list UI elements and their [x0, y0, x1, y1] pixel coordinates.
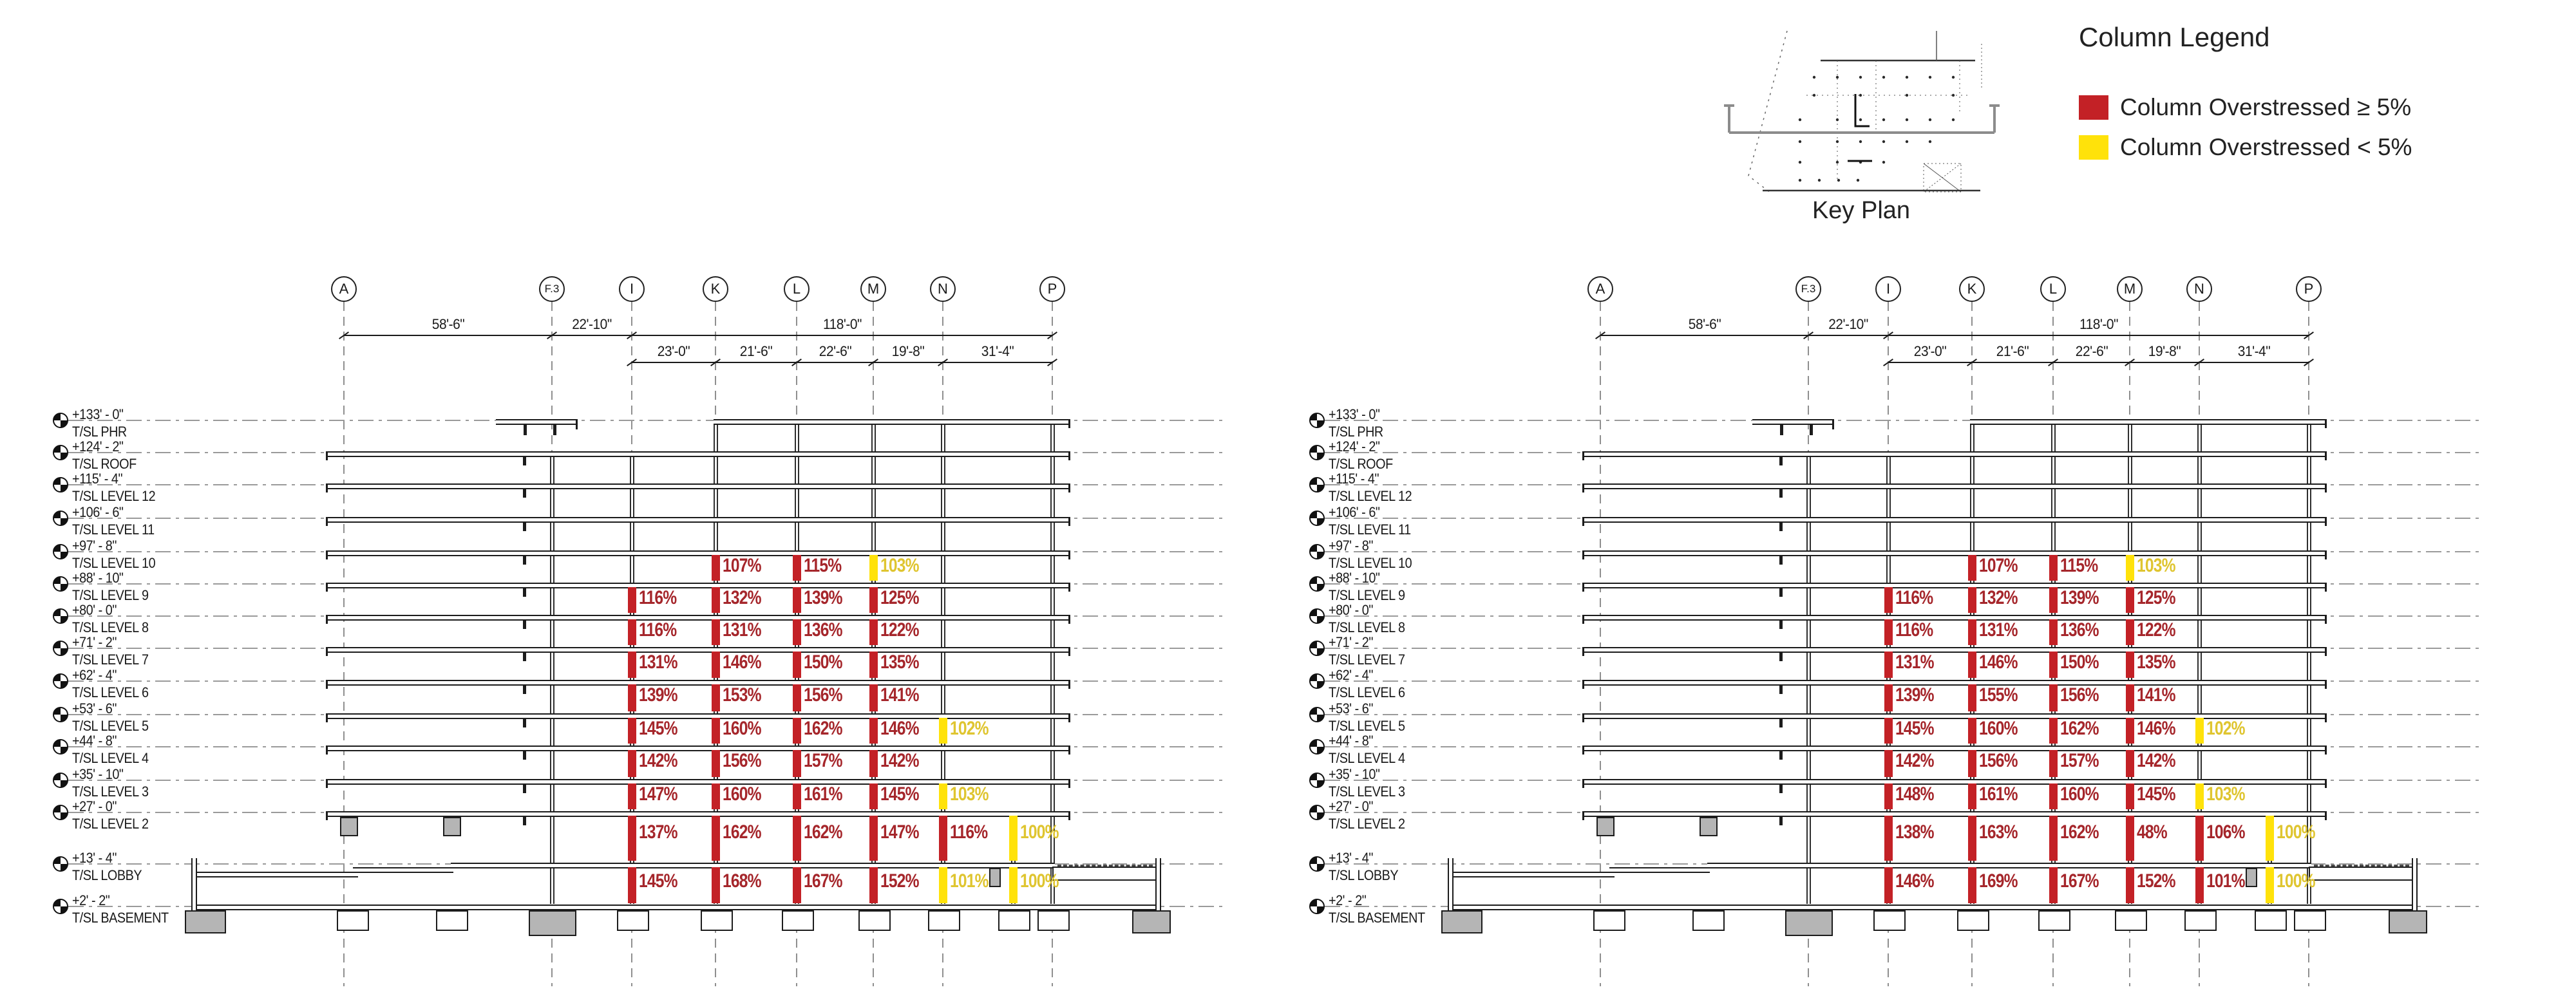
lobby-apron-slab-right — [2309, 867, 2417, 881]
column-bar-major — [869, 783, 878, 809]
column-bar-major — [712, 718, 720, 744]
dimension-line — [344, 335, 1052, 336]
level-elevation-label: +133' - 0" — [72, 408, 124, 422]
column-footing — [782, 910, 814, 931]
percent-label: 156% — [2060, 686, 2099, 705]
column-bar-major — [939, 816, 947, 861]
percent-label: 122% — [880, 621, 919, 640]
percent-label: 135% — [2137, 653, 2175, 672]
column-footing — [701, 910, 733, 931]
slab-end-cap — [326, 451, 328, 460]
slab-stub — [523, 523, 526, 531]
level-marker-icon — [52, 510, 69, 527]
column-bar-major — [1884, 783, 1893, 809]
elevation-view-left: AF.3IKLMNP58'-6"22'-10"118'-0"23'-0"21'-… — [0, 0, 1262, 994]
percent-label: 131% — [1895, 653, 1934, 672]
column-stub — [340, 817, 358, 836]
level-name-label: T/SL LEVEL 6 — [72, 686, 149, 700]
percent-label: 146% — [2137, 719, 2175, 738]
percent-label: 145% — [880, 785, 919, 804]
column-footing — [998, 910, 1030, 931]
level-marker-icon — [1309, 738, 1325, 755]
slab-stub — [1779, 653, 1783, 661]
column-bar-major — [793, 652, 801, 678]
column-bar-major — [1968, 718, 1976, 744]
grid-line-A — [343, 302, 345, 986]
level-name-label: T/SL LEVEL 7 — [1329, 653, 1405, 667]
column-bar-major — [1884, 750, 1893, 777]
slab-end-cap — [326, 713, 328, 722]
level-name-label: T/SL BASEMENT — [72, 911, 169, 925]
dimension-label: 31'-4" — [980, 343, 1016, 360]
percent-label: 161% — [804, 785, 842, 804]
floor-slab — [1582, 583, 2325, 588]
floor-slab — [326, 550, 1069, 556]
column-bar-minor — [2266, 816, 2274, 861]
grid-bubble-M: M — [860, 276, 886, 302]
grid-footing-F3 — [529, 910, 576, 936]
lobby-apron-slab-left2 — [353, 867, 453, 873]
level-elevation-label: +27' - 0" — [72, 800, 117, 814]
grid-bubble-label: P — [1048, 281, 1057, 297]
slab-end-cap — [326, 583, 328, 592]
percent-label: 150% — [804, 653, 842, 672]
grid-bubble-K: K — [1959, 276, 1985, 302]
percent-label: 131% — [723, 621, 761, 640]
percent-label: 142% — [639, 751, 677, 771]
grid-bubble-N: N — [2186, 276, 2212, 302]
column-footing — [928, 910, 960, 931]
percent-label: 142% — [2137, 751, 2175, 771]
slab-end-cap — [2325, 550, 2327, 559]
grid-bubble-A: A — [1587, 276, 1613, 302]
percent-label: 116% — [1895, 588, 1933, 608]
percent-label: 131% — [639, 653, 677, 672]
column-bar-major — [2126, 684, 2134, 711]
level-elevation-label: +13' - 4" — [72, 851, 117, 865]
slab-stub — [1779, 489, 1783, 498]
slab-stub — [523, 785, 526, 793]
percent-label: 125% — [880, 588, 919, 608]
grid-bubble-label: A — [1596, 281, 1605, 297]
slab-end-cap — [2325, 779, 2327, 788]
slab-end-cap — [2325, 517, 2327, 526]
column-bar-major — [2126, 783, 2134, 809]
dimension-label: 19'-8" — [890, 343, 926, 360]
level-name-label: T/SL LEVEL 6 — [1329, 686, 1405, 700]
level-name-label: T/SL BASEMENT — [1329, 911, 1425, 925]
column-bar-major — [869, 619, 878, 645]
percent-label: 156% — [1979, 751, 2018, 771]
column-bar-major — [712, 587, 720, 613]
grid-bubble-I: I — [619, 276, 645, 302]
column-bar-major — [2049, 783, 2058, 809]
column-bar-major — [628, 718, 636, 744]
percent-label: 103% — [880, 556, 919, 576]
level-elevation-label: +133' - 0" — [1329, 408, 1380, 422]
column-footing — [1873, 910, 1906, 931]
slab-stub — [1779, 621, 1783, 629]
percent-label: 139% — [804, 588, 842, 608]
level-name-label: T/SL LEVEL 9 — [72, 588, 149, 603]
level-elevation-label: +80' - 0" — [1329, 603, 1373, 617]
level-marker-icon — [1309, 706, 1325, 723]
percent-label: 100% — [2277, 872, 2315, 891]
slab-end-cap — [1582, 517, 1584, 526]
level-name-label: T/SL LEVEL 10 — [72, 556, 155, 570]
column-bar-major — [628, 783, 636, 809]
slab-end-cap — [1582, 745, 1584, 755]
grid-bubble-label: N — [938, 281, 948, 297]
slab-end-cap — [326, 647, 328, 656]
column-bar-major — [2049, 555, 2058, 581]
level-name-label: T/SL LEVEL 2 — [72, 817, 149, 831]
column-bar-major — [2126, 718, 2134, 744]
floor-slab — [1582, 550, 2325, 556]
slab-end-cap — [326, 483, 328, 492]
ramp-hatch — [1057, 865, 1153, 867]
percent-label: 142% — [1895, 751, 1934, 771]
level-elevation-label: +106' - 6" — [72, 505, 124, 520]
percent-label: 145% — [639, 719, 677, 738]
level-elevation-label: +115' - 4" — [1329, 472, 1379, 486]
slab-end-cap — [1582, 647, 1584, 656]
section-cut-line — [1724, 106, 2000, 133]
level-name-label: T/SL LEVEL 9 — [1329, 588, 1405, 603]
floor-slab — [1582, 517, 2325, 523]
slab-end-cap — [1582, 680, 1584, 689]
column-footing — [2038, 910, 2070, 931]
percent-label: 139% — [1895, 686, 1934, 705]
floor-slab — [326, 483, 1069, 489]
grid-bubble-label: I — [1886, 281, 1890, 297]
canopy-end-cap — [1832, 419, 1834, 429]
penthouse-roof-slab — [1970, 419, 2325, 425]
level-name-label: T/SL LEVEL 8 — [1329, 621, 1405, 635]
grid-bubble-I: I — [1875, 276, 1901, 302]
level-elevation-label: +44' - 8" — [72, 734, 117, 748]
dimension-label: 21'-6" — [738, 343, 774, 360]
column-bar-major — [869, 750, 878, 777]
column-bar-major — [2126, 867, 2134, 903]
floor-slab — [326, 517, 1069, 523]
column-bar-minor — [939, 783, 947, 809]
level-marker-icon — [1309, 772, 1325, 789]
column-bar-major — [869, 718, 878, 744]
column-bar-major — [869, 684, 878, 711]
column-bar-minor — [939, 718, 947, 744]
grid-bubble-M: M — [2117, 276, 2143, 302]
level-name-label: T/SL LEVEL 4 — [1329, 751, 1405, 765]
percent-label: 162% — [723, 823, 761, 842]
column-bar-minor — [2195, 783, 2204, 809]
slab-end-cap — [1068, 745, 1070, 755]
level-marker-icon — [52, 543, 69, 560]
percent-label: 161% — [1979, 785, 2018, 804]
dimension-label: 22'-6" — [817, 343, 853, 360]
column-bar-major — [628, 652, 636, 678]
lobby-apron-slab-right — [1052, 867, 1160, 881]
slab-end-cap — [2325, 419, 2327, 428]
level-marker-icon — [1309, 640, 1325, 657]
level-marker-icon — [52, 608, 69, 624]
level-elevation-label: +27' - 0" — [1329, 800, 1373, 814]
column-bar-major — [1884, 619, 1893, 645]
canopy-slab — [496, 419, 577, 425]
percent-label: 162% — [2060, 823, 2099, 842]
grid-bubble-F.3: F.3 — [539, 276, 565, 302]
level-elevation-label: +44' - 8" — [1329, 734, 1373, 748]
level-elevation-label: +115' - 4" — [72, 472, 122, 486]
slab-end-cap — [2325, 680, 2327, 689]
slab-end-cap — [1068, 680, 1070, 689]
dimension-label: 19'-8" — [2146, 343, 2183, 360]
slab-stub — [523, 457, 526, 465]
percent-label: 146% — [1895, 872, 1934, 891]
dimension-label: 58'-6" — [1686, 316, 1722, 333]
level-name-label: T/SL LEVEL 11 — [1329, 523, 1411, 537]
column-bar-major — [2049, 684, 2058, 711]
key-plan-thumbnail — [1710, 18, 2012, 196]
column-footing — [1957, 910, 1989, 931]
dimension-label: 22'-10" — [570, 316, 613, 333]
grid-bubble-label: A — [339, 281, 349, 297]
slab-stub — [1779, 588, 1783, 597]
column-bar-major — [793, 750, 801, 777]
percent-label: 116% — [639, 621, 676, 640]
slab-stub — [523, 719, 526, 727]
slab-end-cap — [326, 550, 328, 559]
level-name-label: T/SL LEVEL 10 — [1329, 556, 1412, 570]
level-elevation-label: +88' - 10" — [72, 571, 124, 585]
canopy-stub — [553, 425, 556, 435]
percent-label: 136% — [804, 621, 842, 640]
grid-bubble-label: K — [1967, 281, 1977, 297]
level-marker-icon — [1309, 856, 1325, 872]
percent-label: 139% — [2060, 588, 2099, 608]
percent-label: 102% — [950, 719, 989, 738]
level-marker-icon — [1309, 444, 1325, 461]
column-bar-major — [869, 652, 878, 678]
floor-slab — [1582, 615, 2325, 621]
canopy-stub — [1780, 425, 1783, 435]
percent-label: 103% — [950, 785, 989, 804]
level-elevation-label: +62' - 4" — [72, 668, 117, 682]
ramp-hatch — [2314, 865, 2409, 867]
slab-end-cap — [1582, 713, 1584, 722]
percent-label: 155% — [1979, 686, 2018, 705]
column-footing — [1593, 910, 1625, 931]
level-name-label: T/SL LEVEL 12 — [1329, 489, 1412, 503]
percent-label: 139% — [639, 686, 677, 705]
column-bar-major — [1968, 816, 1976, 861]
floor-slab — [326, 680, 1069, 686]
wall-footing — [185, 910, 226, 933]
level-elevation-label: +71' - 2" — [72, 635, 117, 650]
lobby-column-stub — [2246, 868, 2257, 887]
percent-label: 157% — [804, 751, 842, 771]
percent-label: 138% — [1895, 823, 1934, 842]
slab-end-cap — [1582, 811, 1584, 820]
percent-label: 146% — [1979, 653, 2018, 672]
dimension-line — [632, 362, 1052, 363]
column-bar-major — [2195, 816, 2204, 861]
percent-label: 141% — [2137, 686, 2175, 705]
percent-label: 162% — [804, 719, 842, 738]
level-elevation-label: +97' - 8" — [72, 539, 117, 553]
percent-label: 147% — [880, 823, 919, 842]
percent-label: 160% — [723, 785, 761, 804]
percent-label: 103% — [2137, 556, 2175, 576]
slab-stub — [1779, 719, 1783, 727]
dimension-label: 31'-4" — [2236, 343, 2272, 360]
percent-label: 162% — [804, 823, 842, 842]
grid-bubble-label: M — [2124, 281, 2136, 297]
grid-bubble-K: K — [703, 276, 728, 302]
column-bar-major — [712, 867, 720, 903]
floor-slab — [1582, 483, 2325, 489]
level-elevation-label: +35' - 10" — [72, 767, 124, 782]
level-marker-icon — [1309, 804, 1325, 821]
level-elevation-label: +13' - 4" — [1329, 851, 1373, 865]
drawing-canvas: Column Legend Column Overstressed ≥ 5% C… — [0, 0, 2576, 994]
column-bar-major — [1968, 750, 1976, 777]
percent-label: 167% — [804, 872, 842, 891]
level-marker-icon — [52, 673, 69, 689]
slab-end-cap — [1068, 713, 1070, 722]
level-name-label: T/SL LEVEL 5 — [1329, 719, 1405, 733]
level-elevation-label: +53' - 6" — [1329, 702, 1373, 716]
lobby-slab — [451, 863, 1055, 868]
grid-bubble-label: P — [2304, 281, 2314, 297]
dimension-label: 21'-6" — [1994, 343, 2031, 360]
level-elevation-label: +124' - 2" — [72, 440, 124, 454]
column-bar-major — [2195, 867, 2204, 903]
percent-label: 48% — [2137, 823, 2167, 842]
floor-slab — [1582, 745, 2325, 751]
level-elevation-label: +97' - 8" — [1329, 539, 1373, 553]
column-bar-major — [793, 619, 801, 645]
dimension-line — [1888, 362, 2309, 363]
slab-end-cap — [2325, 483, 2327, 492]
column-bar-major — [712, 619, 720, 645]
slab-end-cap — [1582, 451, 1584, 460]
level-elevation-label: +53' - 6" — [72, 702, 117, 716]
column-bar-major — [712, 684, 720, 711]
percent-label: 131% — [1979, 621, 2018, 640]
column-bar-major — [628, 684, 636, 711]
column-bar-major — [1968, 587, 1976, 613]
column-footing — [436, 910, 468, 931]
slab-stub — [1779, 686, 1783, 694]
slab-stub — [523, 489, 526, 498]
column-bar-major — [2126, 816, 2134, 861]
percent-label: 100% — [1020, 823, 1059, 842]
column-bar-major — [793, 816, 801, 861]
slab-end-cap — [1582, 550, 1584, 559]
column-bar-major — [2049, 652, 2058, 678]
level-elevation-label: +88' - 10" — [1329, 571, 1380, 585]
column-bar-major — [1884, 587, 1893, 613]
column-bar-major — [2126, 750, 2134, 777]
level-elevation-label: +62' - 4" — [1329, 668, 1373, 682]
dimension-label: 22'-6" — [2073, 343, 2109, 360]
level-elevation-label: +80' - 0" — [72, 603, 117, 617]
percent-label: 135% — [880, 653, 919, 672]
level-name-label: T/SL LEVEL 3 — [1329, 785, 1405, 799]
basement-slab — [194, 905, 1157, 910]
slab-end-cap — [2325, 745, 2327, 755]
percent-label: 116% — [950, 823, 987, 842]
slab-end-cap — [326, 811, 328, 820]
level-marker-icon — [52, 772, 69, 789]
percent-label: 137% — [639, 823, 677, 842]
level-name-label: T/SL PHR — [72, 425, 127, 439]
level-marker-icon — [1309, 673, 1325, 689]
column-bar-major — [1968, 619, 1976, 645]
column-footing — [2115, 910, 2147, 931]
level-marker-icon — [1309, 576, 1325, 592]
column-bar-major — [1968, 684, 1976, 711]
percent-label: 125% — [2137, 588, 2175, 608]
level-elevation-label: +124' - 2" — [1329, 440, 1380, 454]
slab-stub — [523, 588, 526, 597]
column-footing — [1037, 910, 1070, 931]
level-marker-icon — [52, 898, 69, 915]
column-bar-major — [712, 652, 720, 678]
level-elevation-label: +35' - 10" — [1329, 767, 1380, 782]
percent-label: 157% — [2060, 751, 2099, 771]
grid-bubble-label: L — [2049, 281, 2057, 297]
grid-bubble-N: N — [930, 276, 956, 302]
percent-label: 142% — [880, 751, 919, 771]
canopy-end-cap — [576, 419, 578, 429]
column-bar-major — [1968, 652, 1976, 678]
level-name-label: T/SL LEVEL 5 — [72, 719, 149, 733]
slab-stub — [523, 686, 526, 694]
column-bar-minor — [2195, 718, 2204, 744]
percent-label: 100% — [1020, 872, 1059, 891]
column-bar-major — [2126, 619, 2134, 645]
grid-bubble-P: P — [1039, 276, 1065, 302]
column-bar-major — [793, 718, 801, 744]
column-bar-major — [628, 816, 636, 861]
slab-end-cap — [2325, 451, 2327, 460]
level-marker-icon — [52, 576, 69, 592]
column-bar-major — [1884, 718, 1893, 744]
dimension-label: 58'-6" — [430, 316, 466, 333]
slab-end-cap — [1582, 583, 1584, 592]
lobby-apron-slab-left1 — [1450, 872, 1615, 877]
level-marker-icon — [52, 444, 69, 461]
level-name-label: T/SL LEVEL 2 — [1329, 817, 1405, 831]
slab-stub — [523, 621, 526, 629]
grid-bubble-P: P — [2296, 276, 2322, 302]
basement-wall-right — [1155, 858, 1161, 912]
slab-end-cap — [1068, 550, 1070, 559]
grid-bubble-label: I — [630, 281, 634, 297]
percent-label: 107% — [1979, 556, 2018, 576]
level-name-label: T/SL ROOF — [72, 457, 137, 471]
slab-end-cap — [2325, 647, 2327, 656]
percent-label: 136% — [2060, 621, 2099, 640]
column-bar-major — [793, 684, 801, 711]
level-marker-icon — [1309, 543, 1325, 560]
percent-label: 115% — [2060, 556, 2098, 576]
floor-slab — [1582, 680, 2325, 686]
canopy-stub — [1810, 425, 1813, 435]
grid-bubble-label: L — [793, 281, 800, 297]
